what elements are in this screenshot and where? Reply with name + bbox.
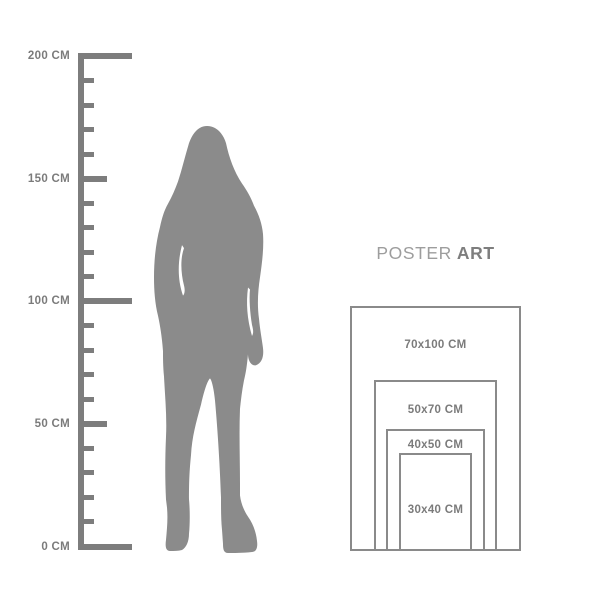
ruler-tick-90cm — [78, 323, 94, 328]
ruler-tick-150cm — [78, 176, 107, 182]
ruler-tick-70cm — [78, 372, 94, 377]
size-guide-infographic: 200 CM150 CM100 CM50 CM0 CM POSTERART 70… — [0, 0, 600, 600]
poster-size-label-40x50: 40x50 CM — [386, 437, 484, 453]
poster-size-label-70x100: 70x100 CM — [350, 337, 522, 353]
ruler-tick-80cm — [78, 348, 94, 353]
ruler-label-200cm: 200 CM — [0, 48, 70, 64]
ruler-label-0cm: 0 CM — [0, 539, 70, 555]
woman-silhouette-icon — [153, 126, 265, 555]
ruler-tick-20cm — [78, 495, 94, 500]
ruler-tick-180cm — [78, 103, 94, 108]
ruler-tick-30cm — [78, 470, 94, 475]
ruler-tick-0cm — [78, 544, 132, 550]
ruler-tick-200cm — [78, 53, 132, 59]
brand-title: POSTERART — [335, 243, 536, 264]
brand-word-poster: POSTER — [376, 243, 452, 263]
ruler-tick-40cm — [78, 446, 94, 451]
ruler-label-100cm: 100 CM — [0, 293, 70, 309]
silhouette-body — [154, 126, 263, 553]
ruler-label-50cm: 50 CM — [0, 416, 70, 432]
ruler-tick-120cm — [78, 250, 94, 255]
poster-size-label-50x70: 50x70 CM — [374, 402, 497, 418]
ruler-tick-110cm — [78, 274, 94, 279]
ruler-label-150cm: 150 CM — [0, 171, 70, 187]
poster-size-label-30x40: 30x40 CM — [399, 502, 473, 518]
ruler-tick-190cm — [78, 78, 94, 83]
ruler-tick-140cm — [78, 201, 94, 206]
brand-word-art: ART — [457, 243, 495, 263]
ruler-tick-10cm — [78, 519, 94, 524]
ruler-tick-170cm — [78, 127, 94, 132]
ruler-tick-60cm — [78, 397, 94, 402]
ruler-tick-100cm — [78, 298, 132, 304]
ruler-tick-130cm — [78, 225, 94, 230]
ruler-tick-160cm — [78, 152, 94, 157]
ruler-tick-50cm — [78, 421, 107, 427]
